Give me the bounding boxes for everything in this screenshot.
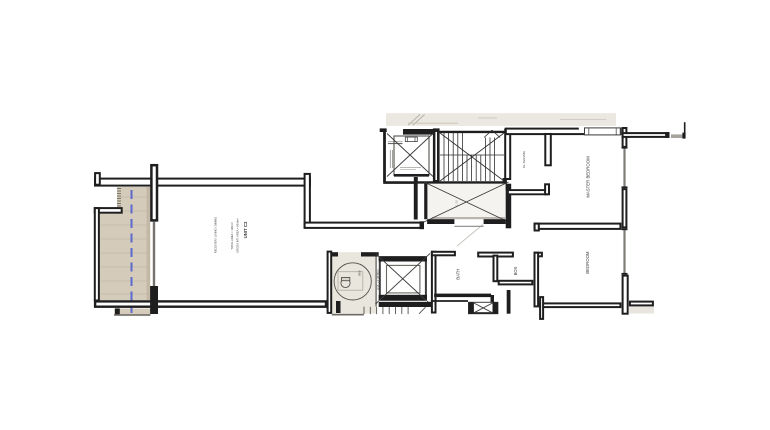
svg-text:MASTER BEDROOM: MASTER BEDROOM [585, 156, 590, 198]
svg-text:CL.SHLVNG: CL.SHLVNG [522, 150, 526, 167]
svg-text:BEDROOM: BEDROOM [585, 251, 590, 274]
svg-text:W.B: W.B [358, 270, 362, 276]
svg-text:GROSS INT. AREA = 80.0m²: GROSS INT. AREA = 80.0m² [236, 218, 240, 253]
svg-text:UNIT C3: UNIT C3 [243, 221, 248, 238]
svg-text:TOTAL AREA = 100 m²: TOTAL AREA = 100 m² [230, 222, 234, 250]
svg-text:1.50: 1.50 [455, 200, 459, 206]
svg-text:RECEIVER / LIVING / DINING: RECEIVER / LIVING / DINING [214, 217, 218, 253]
svg-text:BATH: BATH [456, 269, 461, 280]
svg-text:BOX: BOX [513, 266, 518, 275]
